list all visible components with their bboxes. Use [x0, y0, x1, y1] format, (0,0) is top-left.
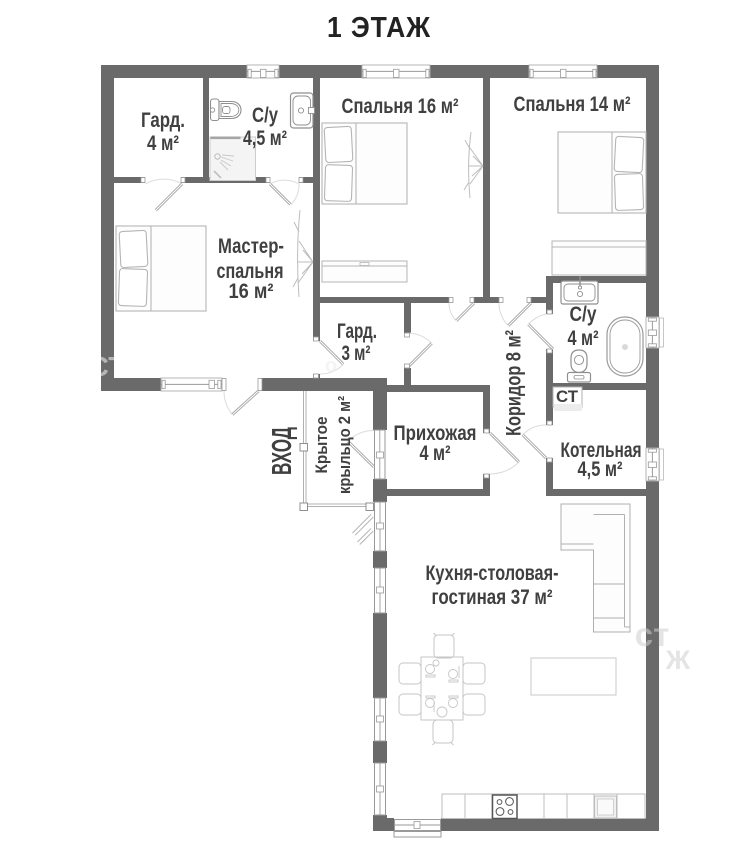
svg-text:Кухня-столовая-: Кухня-столовая-	[426, 562, 559, 585]
svg-text:Крытое: Крытое	[312, 417, 331, 474]
svg-text:1 ЭТАЖ: 1 ЭТАЖ	[327, 12, 431, 44]
svg-text:гостиная 37 м²: гостиная 37 м²	[432, 586, 553, 609]
svg-text:4,5 м²: 4,5 м²	[578, 458, 623, 481]
svg-text:Ж: Ж	[665, 645, 691, 675]
svg-text:4 м²: 4 м²	[147, 132, 179, 155]
svg-text:крыльцо 2 м²: крыльцо 2 м²	[335, 396, 354, 494]
svg-text:ст: ст	[635, 616, 670, 653]
svg-text:3 м²: 3 м²	[342, 342, 371, 365]
svg-text:Мастер-: Мастер-	[218, 235, 284, 258]
svg-text:Спальня 14 м²: Спальня 14 м²	[514, 93, 631, 116]
svg-text:ВХОД: ВХОД	[266, 427, 297, 475]
svg-text:4 м²: 4 м²	[568, 327, 599, 350]
svg-text:Гард.: Гард.	[141, 109, 185, 132]
svg-text:СТ: СТ	[556, 387, 579, 406]
svg-text:С/у: С/у	[570, 303, 597, 326]
svg-text:16 м²: 16 м²	[229, 280, 274, 303]
svg-text:Гард.: Гард.	[337, 320, 377, 343]
svg-text:4,5 м²: 4,5 м²	[243, 127, 287, 150]
svg-text:о: о	[325, 355, 337, 377]
svg-text:СТ: СТ	[89, 351, 126, 382]
svg-text:Коридор 8 м²: Коридор 8 м²	[502, 330, 526, 436]
svg-text:С/у: С/у	[252, 104, 278, 127]
svg-text:4 м²: 4 м²	[420, 442, 451, 465]
svg-text:Спальня 16 м²: Спальня 16 м²	[342, 95, 459, 118]
